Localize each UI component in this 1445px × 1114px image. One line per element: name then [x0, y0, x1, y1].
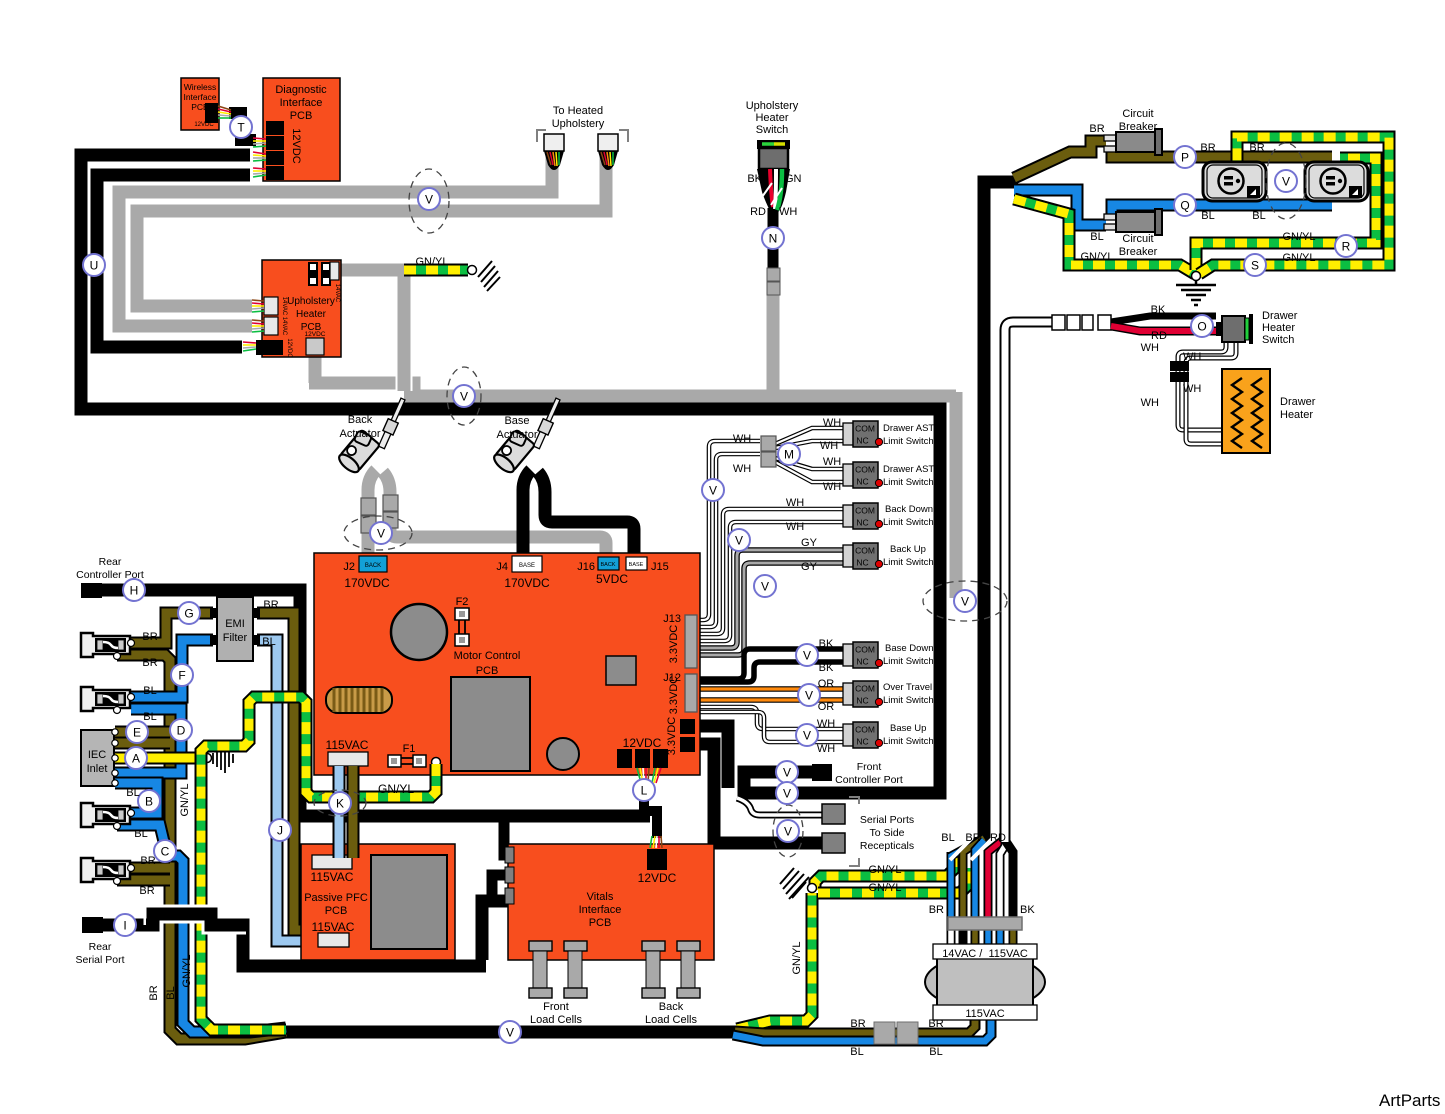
svg-text:WH: WH — [823, 456, 841, 468]
svg-text:V: V — [761, 580, 769, 594]
svg-text:WH: WH — [1183, 351, 1201, 363]
svg-text:3.3VDC: 3.3VDC — [668, 676, 680, 715]
svg-text:BK: BK — [819, 638, 834, 650]
svg-text:115VAC: 115VAC — [965, 1008, 1004, 1020]
svg-text:Controller Port: Controller Port — [76, 569, 144, 581]
svg-text:WH: WH — [823, 417, 841, 429]
svg-text:V: V — [425, 193, 433, 207]
svg-text:BL: BL — [850, 1046, 863, 1058]
svg-text:Back: Back — [659, 1001, 684, 1013]
svg-text:GN/YL: GN/YL — [179, 783, 191, 816]
svg-text:Back: Back — [348, 414, 373, 426]
svg-text:12VDC: 12VDC — [286, 338, 292, 358]
svg-text:GN/YL: GN/YL — [791, 941, 803, 974]
svg-text:C: C — [161, 845, 170, 859]
svg-text:Over Travel: Over Travel — [883, 682, 932, 693]
svg-text:BR: BR — [139, 885, 154, 897]
svg-text:Base Up: Base Up — [890, 723, 926, 734]
svg-text:Drawer AST: Drawer AST — [883, 423, 934, 434]
svg-text:Upholstery: Upholstery — [746, 100, 799, 112]
svg-text:Front: Front — [857, 761, 882, 773]
svg-text:Limit Switch: Limit Switch — [883, 656, 934, 667]
svg-text:Limit Switch: Limit Switch — [883, 695, 934, 706]
svg-text:D: D — [177, 724, 186, 738]
svg-text:GN/YL: GN/YL — [1282, 231, 1315, 243]
svg-text:Limit Switch: Limit Switch — [883, 477, 934, 488]
svg-text:WH: WH — [817, 718, 835, 730]
svg-text:V: V — [709, 484, 717, 498]
svg-text:Interface: Interface — [280, 97, 323, 109]
svg-text:H: H — [130, 584, 139, 598]
svg-text:WH: WH — [820, 440, 838, 452]
svg-text:Breaker: Breaker — [1119, 121, 1158, 133]
svg-text:BL: BL — [134, 828, 147, 840]
svg-text:PCB: PCB — [290, 110, 313, 122]
svg-text:I: I — [123, 919, 126, 933]
svg-text:V: V — [803, 649, 811, 663]
svg-text:Vitals: Vitals — [587, 891, 614, 903]
svg-text:BR: BR — [929, 904, 944, 916]
svg-text:IEC: IEC — [88, 749, 106, 761]
svg-text:Heater: Heater — [1262, 322, 1295, 334]
svg-text:J15: J15 — [651, 561, 669, 573]
svg-text:V: V — [783, 787, 791, 801]
svg-text:3.3VDC: 3.3VDC — [668, 625, 680, 664]
svg-text:GN/YL: GN/YL — [1080, 251, 1113, 263]
svg-text:K: K — [336, 797, 344, 811]
svg-text:PCB: PCB — [325, 905, 348, 917]
svg-text:Switch: Switch — [1262, 334, 1294, 346]
svg-text:PCB: PCB — [476, 665, 499, 677]
svg-text:BASE: BASE — [519, 563, 535, 569]
svg-text:V: V — [783, 766, 791, 780]
svg-text:Breaker: Breaker — [1119, 246, 1158, 258]
svg-text:170VDC: 170VDC — [504, 576, 550, 590]
svg-text:Limit Switch: Limit Switch — [883, 736, 934, 747]
svg-text:T: T — [237, 121, 245, 135]
svg-text:To Heated: To Heated — [553, 105, 603, 117]
svg-text:Wireless: Wireless — [184, 82, 217, 92]
svg-text:Controller Port: Controller Port — [835, 774, 903, 786]
svg-text:J4: J4 — [496, 561, 508, 573]
svg-text:Drawer: Drawer — [1280, 396, 1316, 408]
svg-text:Back Down: Back Down — [885, 504, 933, 515]
svg-text:14VAC: 14VAC — [281, 297, 287, 316]
svg-text:BR: BR — [1200, 142, 1215, 154]
svg-text:BR: BR — [142, 631, 157, 643]
svg-text:Filter: Filter — [223, 632, 248, 644]
svg-text:GN/YL: GN/YL — [181, 954, 193, 987]
svg-text:Upholstery: Upholstery — [552, 118, 605, 130]
svg-text:M: M — [784, 448, 794, 462]
svg-text:Back Up: Back Up — [890, 544, 926, 555]
svg-text:EMI: EMI — [225, 618, 245, 630]
svg-text:BL: BL — [1201, 210, 1214, 222]
svg-text:Rear: Rear — [89, 941, 112, 953]
svg-text:14VAC: 14VAC — [281, 317, 287, 336]
svg-text:WH: WH — [733, 463, 751, 475]
svg-text:V: V — [961, 595, 969, 609]
svg-text:J13: J13 — [663, 613, 681, 625]
svg-text:BR: BR — [148, 985, 160, 1000]
svg-text:GN/YL: GN/YL — [415, 256, 448, 268]
svg-text:RD: RD — [750, 206, 766, 218]
svg-text:WH: WH — [1141, 342, 1159, 354]
svg-text:170VDC: 170VDC — [344, 576, 390, 590]
svg-text:BASE: BASE — [629, 562, 644, 568]
svg-text:Heater: Heater — [755, 112, 788, 124]
svg-text:Switch: Switch — [756, 124, 788, 136]
svg-text:RD: RD — [1151, 330, 1167, 342]
svg-text:BR: BR — [1249, 142, 1264, 154]
svg-text:BACK: BACK — [601, 562, 616, 568]
svg-text:WH: WH — [779, 206, 797, 218]
svg-text:Front: Front — [543, 1001, 569, 1013]
svg-text:F1: F1 — [403, 743, 416, 755]
svg-text:WH: WH — [817, 743, 835, 755]
svg-text:3.3VDC: 3.3VDC — [666, 717, 678, 756]
svg-text:Load Cells: Load Cells — [530, 1014, 582, 1026]
svg-text:Diagnostic: Diagnostic — [275, 84, 327, 96]
svg-text:J16: J16 — [577, 561, 595, 573]
svg-text:Limit Switch: Limit Switch — [883, 517, 934, 528]
svg-text:Rear: Rear — [99, 556, 122, 568]
svg-text:F: F — [178, 669, 185, 683]
svg-text:BL: BL — [1252, 210, 1265, 222]
svg-text:BL: BL — [929, 1046, 942, 1058]
svg-text:14VAC / 115VAC: 14VAC / 115VAC — [942, 948, 1028, 960]
svg-text:5VDC: 5VDC — [596, 572, 628, 586]
svg-text:GN: GN — [785, 173, 802, 185]
svg-text:BL: BL — [941, 832, 954, 844]
svg-text:BL: BL — [126, 787, 139, 799]
svg-text:V: V — [506, 1026, 514, 1040]
svg-text:S: S — [1251, 259, 1259, 273]
svg-text:WH: WH — [786, 521, 804, 533]
svg-text:V: V — [784, 825, 792, 839]
svg-text:OR: OR — [818, 701, 835, 713]
svg-text:Actuator: Actuator — [340, 428, 381, 440]
svg-text:BL: BL — [143, 685, 156, 697]
svg-text:BK: BK — [1020, 904, 1035, 916]
svg-text:Passive PFC: Passive PFC — [304, 892, 368, 904]
svg-text:Serial Ports: Serial Ports — [860, 814, 914, 826]
svg-text:WH: WH — [1183, 383, 1201, 395]
svg-text:E: E — [133, 726, 141, 740]
svg-text:BACK: BACK — [365, 563, 381, 569]
svg-text:J: J — [277, 824, 283, 838]
svg-text:O: O — [1197, 320, 1206, 334]
svg-text:N: N — [769, 232, 778, 246]
svg-text:V: V — [803, 729, 811, 743]
svg-text:GN/YL: GN/YL — [378, 782, 414, 796]
svg-text:To Side: To Side — [869, 827, 904, 839]
svg-text:115VAC: 115VAC — [312, 920, 355, 934]
svg-text:V: V — [1282, 175, 1290, 189]
svg-text:GY: GY — [801, 561, 818, 573]
svg-text:PCB: PCB — [191, 102, 209, 112]
svg-text:Circuit: Circuit — [1122, 233, 1153, 245]
svg-text:V: V — [805, 689, 813, 703]
svg-text:Base: Base — [504, 415, 529, 427]
svg-text:12VDC: 12VDC — [638, 871, 677, 885]
svg-text:BK: BK — [1151, 304, 1166, 316]
svg-text:Motor Control: Motor Control — [454, 650, 521, 662]
svg-text:BR: BR — [263, 599, 278, 611]
svg-text:12VDC: 12VDC — [623, 736, 662, 750]
svg-text:A: A — [132, 752, 140, 766]
svg-text:B: B — [145, 795, 153, 809]
svg-text:RD: RD — [990, 832, 1006, 844]
svg-text:BR: BR — [142, 657, 157, 669]
svg-text:BR: BR — [928, 1018, 943, 1030]
svg-text:Circuit: Circuit — [1122, 108, 1153, 120]
svg-text:BR: BR — [1089, 123, 1104, 135]
svg-text:BL: BL — [262, 636, 275, 648]
svg-text:BR: BR — [850, 1018, 865, 1030]
svg-text:Heater: Heater — [1280, 409, 1313, 421]
svg-text:BL: BL — [143, 711, 156, 723]
svg-text:WH: WH — [733, 433, 751, 445]
svg-text:OR: OR — [818, 678, 835, 690]
svg-text:Upholstery: Upholstery — [287, 296, 335, 307]
svg-text:115VAC: 115VAC — [311, 870, 354, 884]
svg-text:12VDC: 12VDC — [194, 122, 214, 128]
svg-text:Limit Switch: Limit Switch — [883, 557, 934, 568]
svg-text:BR: BR — [965, 832, 980, 844]
svg-text:WH: WH — [1141, 397, 1159, 409]
svg-text:Heater: Heater — [296, 309, 327, 320]
svg-text:12VDC: 12VDC — [290, 128, 302, 164]
svg-text:V: V — [460, 390, 468, 404]
svg-text:BL: BL — [1090, 231, 1103, 243]
svg-text:GN/YL: GN/YL — [1282, 252, 1315, 264]
svg-text:V: V — [735, 534, 743, 548]
svg-text:F2: F2 — [456, 596, 469, 608]
svg-text:GN/YL: GN/YL — [868, 864, 901, 876]
svg-text:Load Cells: Load Cells — [645, 1014, 697, 1026]
svg-text:BK: BK — [819, 662, 834, 674]
svg-text:Drawer: Drawer — [1262, 310, 1298, 322]
svg-text:ArtParts: ArtParts — [1379, 1091, 1440, 1110]
svg-text:PCB: PCB — [589, 917, 612, 929]
svg-text:BK: BK — [747, 173, 762, 185]
svg-text:14VAC: 14VAC — [334, 284, 340, 303]
svg-text:P: P — [1181, 151, 1189, 165]
svg-text:Q: Q — [1180, 199, 1189, 213]
svg-text:V: V — [377, 527, 385, 541]
svg-text:12VDC: 12VDC — [305, 331, 326, 338]
svg-text:Drawer AST: Drawer AST — [883, 464, 934, 475]
svg-text:GY: GY — [801, 537, 818, 549]
svg-text:BL: BL — [165, 986, 177, 999]
svg-text:BR: BR — [140, 855, 155, 867]
svg-text:Interface: Interface — [183, 92, 216, 102]
svg-text:Interface: Interface — [579, 904, 622, 916]
svg-text:L: L — [641, 784, 648, 798]
svg-text:115VAC: 115VAC — [326, 738, 369, 752]
svg-text:Actuator: Actuator — [497, 429, 538, 441]
svg-text:R: R — [1342, 240, 1351, 254]
svg-text:Serial Port: Serial Port — [75, 954, 124, 966]
svg-text:Base Down: Base Down — [885, 643, 934, 654]
svg-text:U: U — [90, 259, 99, 273]
svg-text:Limit Switch: Limit Switch — [883, 436, 934, 447]
svg-text:WH: WH — [823, 481, 841, 493]
svg-text:GN/YL: GN/YL — [868, 882, 901, 894]
svg-text:G: G — [184, 607, 193, 621]
svg-text:J2: J2 — [343, 561, 355, 573]
svg-text:Inlet: Inlet — [87, 763, 108, 775]
svg-text:WH: WH — [786, 497, 804, 509]
svg-text:Recepticals: Recepticals — [860, 840, 914, 852]
